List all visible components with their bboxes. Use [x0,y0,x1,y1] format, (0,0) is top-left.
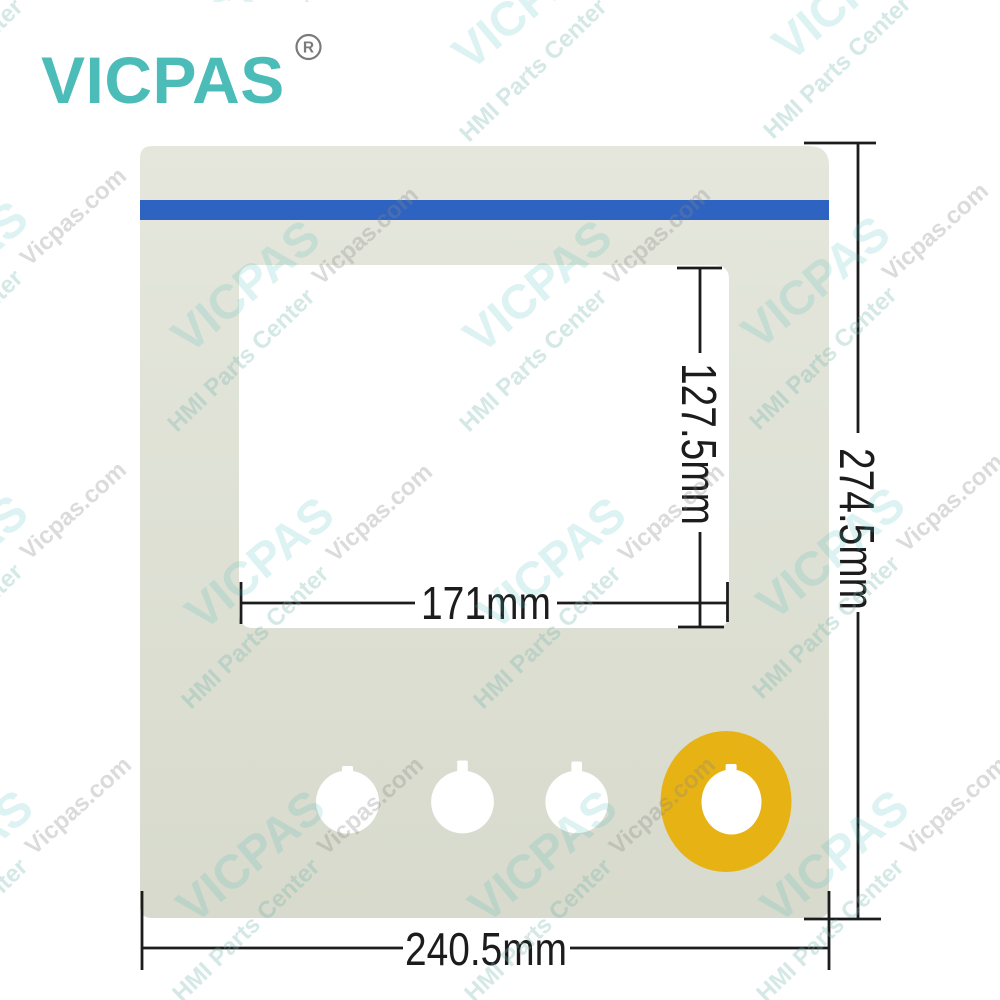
svg-text:VICPAS: VICPAS [41,43,285,117]
svg-text:R: R [303,40,314,57]
